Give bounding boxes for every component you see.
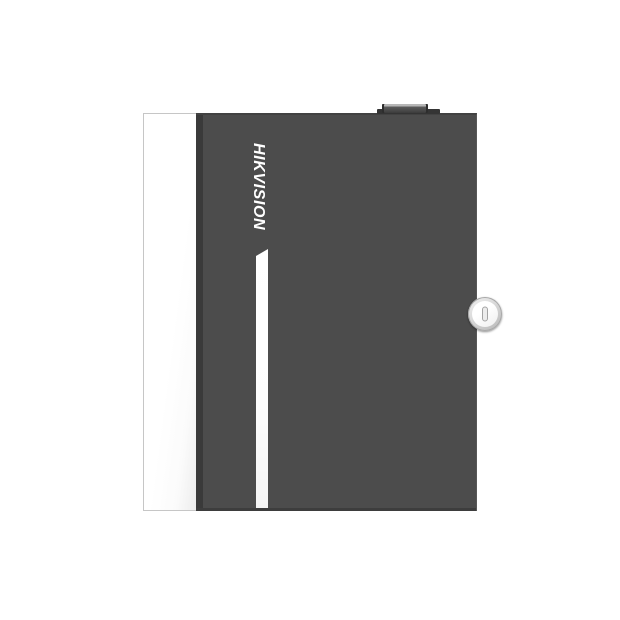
side-panel [143, 113, 196, 511]
reflection-stripe [256, 249, 268, 511]
front-door: HIKVISION [196, 113, 477, 511]
door-edge-groove [196, 115, 203, 511]
keyhole-icon [482, 307, 488, 322]
key-lock [468, 297, 502, 331]
door-bottom-shadow [196, 508, 476, 511]
enclosure-device: HIKVISION [143, 113, 477, 511]
key-lock-face [472, 301, 498, 327]
hikvision-logo: HIKVISION [248, 143, 268, 235]
product-photo: HIKVISION [0, 0, 620, 620]
top-knob [382, 104, 428, 113]
